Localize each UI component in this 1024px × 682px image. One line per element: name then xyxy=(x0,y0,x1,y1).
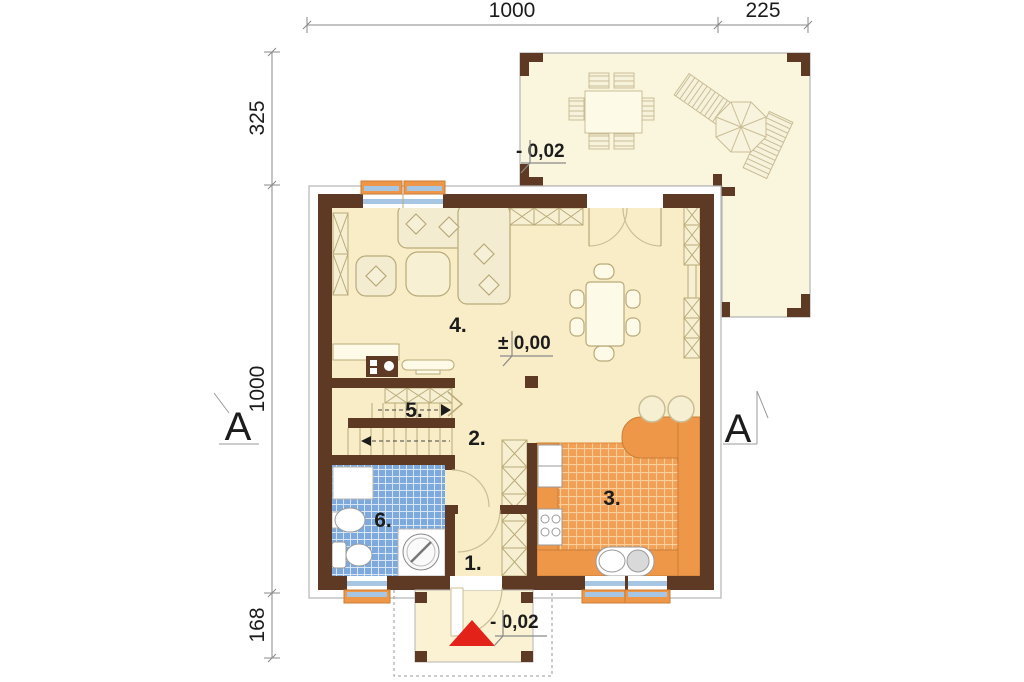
toilet-icon xyxy=(332,542,372,568)
stove-icon xyxy=(538,509,562,545)
house: 3. 6. xyxy=(309,181,721,603)
bar-stool xyxy=(639,396,665,422)
entrance-porch: - 0,02 xyxy=(394,576,552,676)
outdoor-table xyxy=(585,91,642,133)
window-living-room xyxy=(361,181,445,208)
kitchen-sink-icon xyxy=(596,547,654,576)
level-marker-terrace-value: - 0,02 xyxy=(516,141,565,162)
dining-table xyxy=(586,282,624,346)
dimension-top-1000: 1000 xyxy=(489,0,536,22)
bathroom: 6. xyxy=(332,465,445,576)
room-label-hallway: 2. xyxy=(468,427,486,450)
dimension-left-325: 325 xyxy=(246,100,269,135)
section-marker-right-label: A xyxy=(725,407,752,451)
tv-icon xyxy=(402,360,454,370)
fridge-icon xyxy=(538,445,562,487)
window-bathroom xyxy=(344,576,390,603)
front-door-leaf xyxy=(451,588,463,636)
room-label-vestibule: 1. xyxy=(464,552,482,575)
washbasin-icon xyxy=(332,508,365,532)
armchair xyxy=(356,256,396,296)
hallway: 2. xyxy=(468,427,486,450)
floor-plan-drawing: - 0,02 xyxy=(0,0,1024,682)
porch-post-icon xyxy=(415,592,427,603)
room-label-bathroom: 6. xyxy=(374,509,392,532)
kitchen-counter-right xyxy=(678,417,700,576)
terrace-corner-icon xyxy=(722,302,730,317)
washing-machine-icon xyxy=(398,529,445,576)
bar-stool xyxy=(668,396,694,422)
shower-tray xyxy=(333,467,373,499)
porch-post-icon xyxy=(521,592,533,603)
bookcase-hatch xyxy=(333,213,348,295)
coffee-table xyxy=(406,252,450,296)
level-marker-entrance-value: - 0,02 xyxy=(490,612,539,633)
level-marker-main-value: ± 0,00 xyxy=(498,333,551,354)
dimension-left: 325 1000 168 xyxy=(246,48,280,662)
porch-post-icon xyxy=(415,651,427,662)
sideboard-hatch xyxy=(510,208,583,225)
dimension-top: 1000 225 xyxy=(303,0,812,33)
floor-plan-canvas: - 0,02 xyxy=(0,0,1024,682)
structural-post xyxy=(525,376,538,388)
section-marker-left-label: A xyxy=(225,405,252,449)
porch-post-icon xyxy=(521,651,533,662)
dimension-top-225: 225 xyxy=(745,0,780,22)
room-label-living-room: 4. xyxy=(449,314,467,337)
section-marker-right: A xyxy=(723,391,768,451)
umbrella-icon xyxy=(716,102,766,152)
room-label-kitchen: 3. xyxy=(603,487,621,510)
dimension-left-168: 168 xyxy=(246,607,269,642)
